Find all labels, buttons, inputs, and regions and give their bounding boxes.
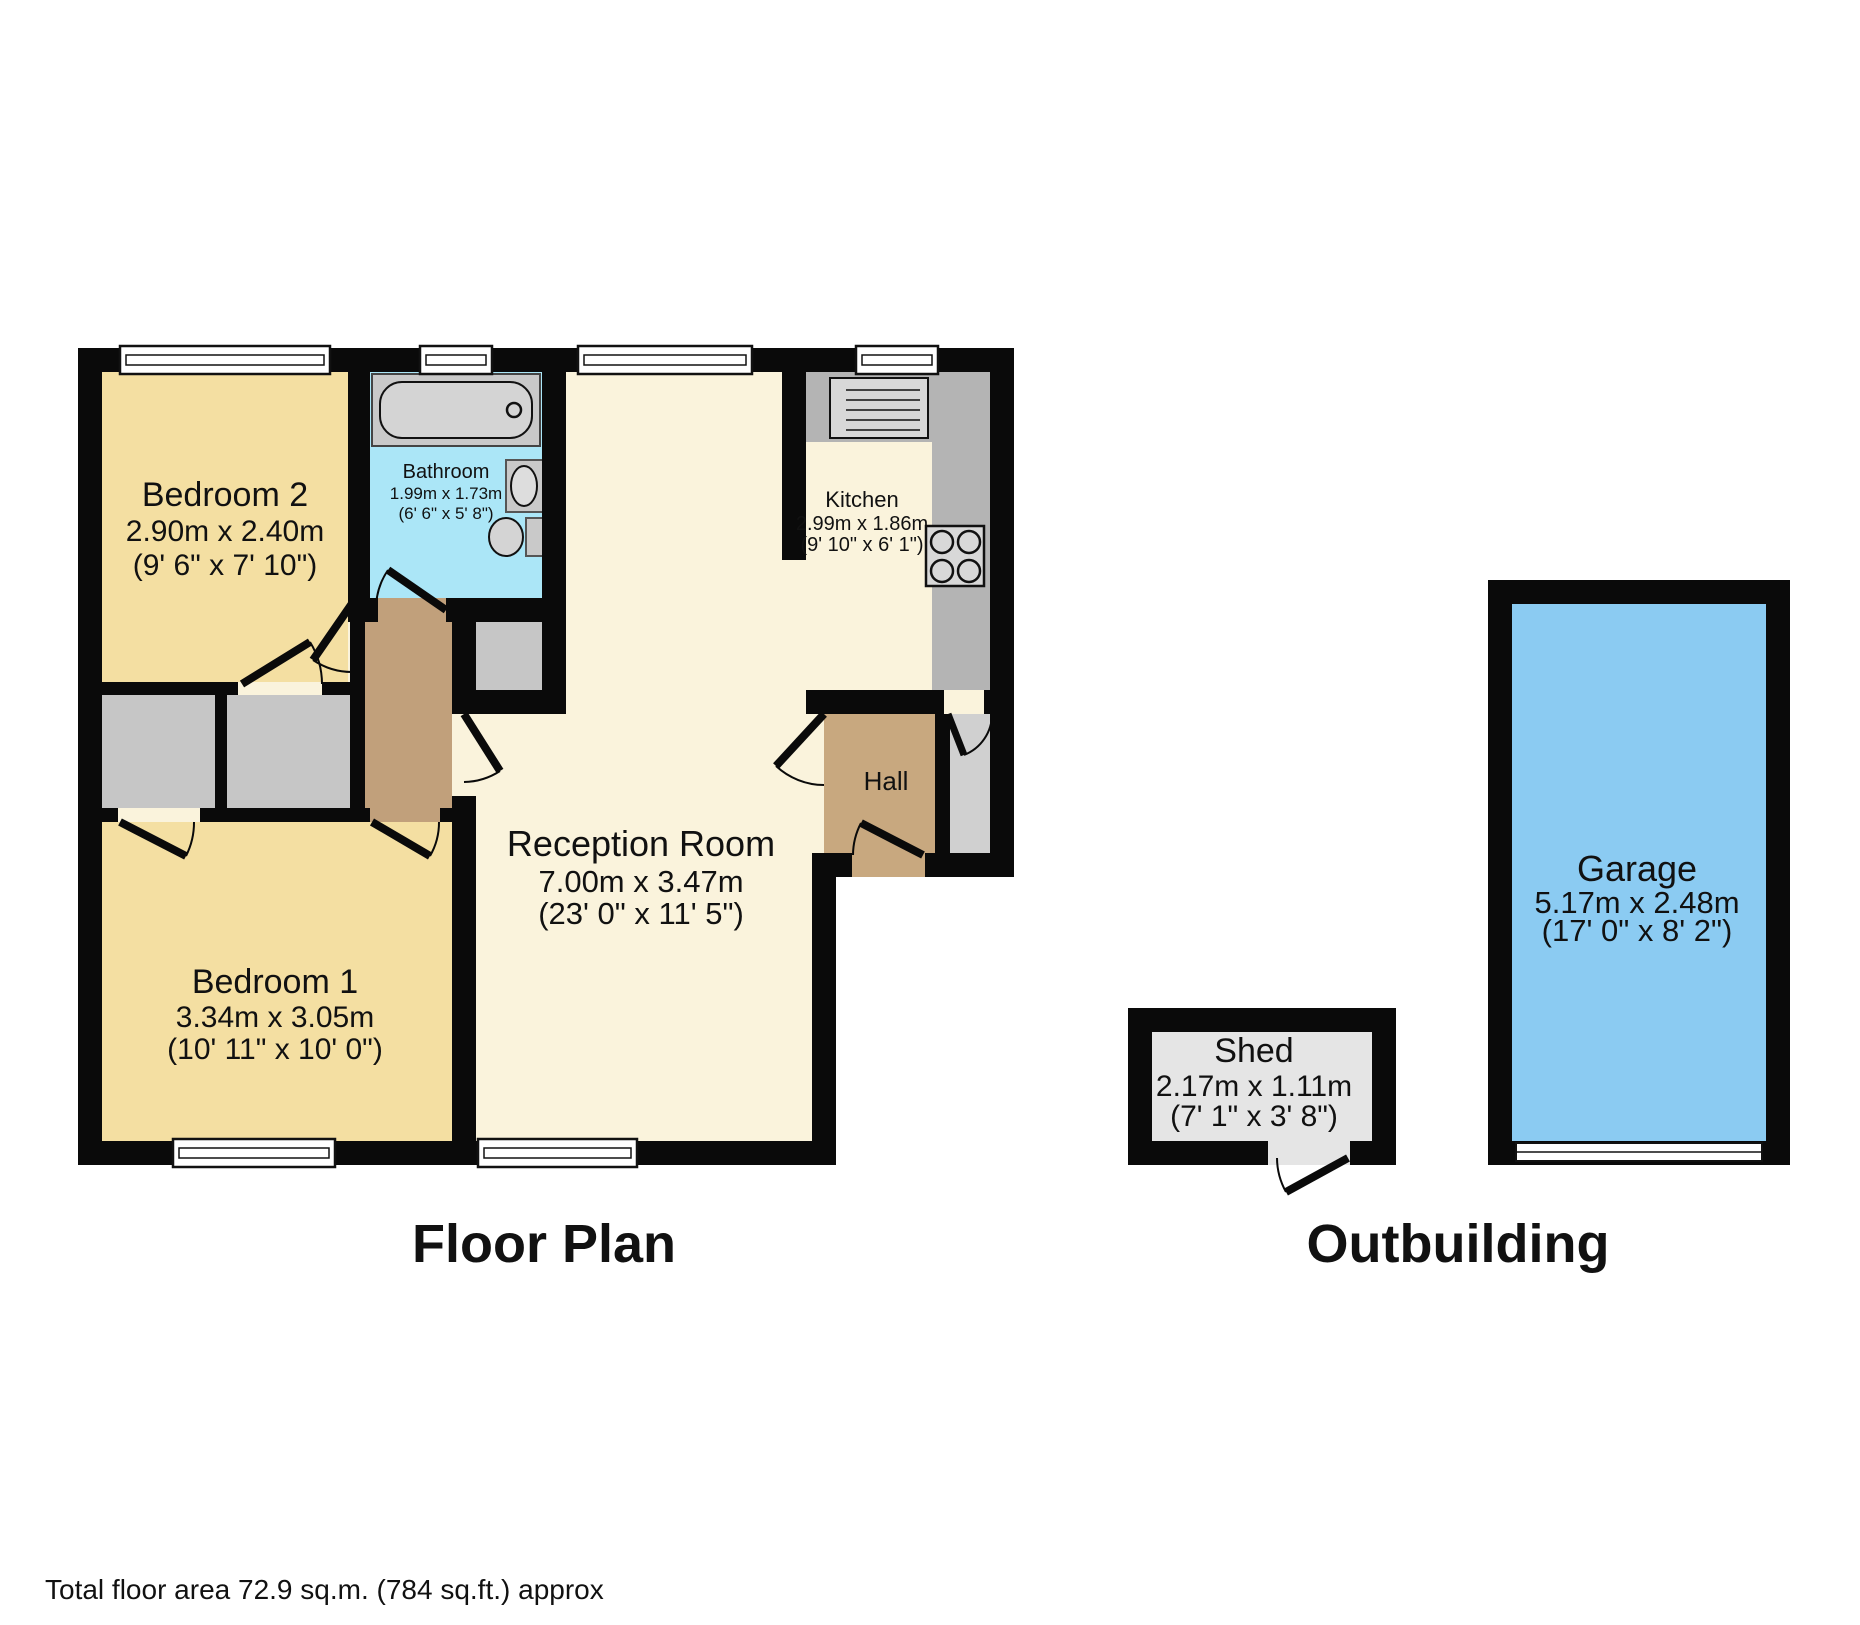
wall-closet-divider (215, 695, 227, 808)
wall-closets-top-left (90, 682, 238, 695)
kitchen-window (856, 346, 938, 374)
wall-closets-bottom-1 (102, 808, 118, 822)
bathtub-basin-icon (380, 382, 532, 438)
garage-door (1516, 1143, 1762, 1161)
bedroom1-metric: 3.34m x 3.05m (176, 1001, 374, 1034)
wall-storage-right (542, 622, 566, 690)
garage-imperial: (17' 0" x 8' 2") (1542, 913, 1733, 948)
wall-bed2-bath (348, 372, 370, 598)
bedroom2-label: Bedroom 2 (142, 476, 308, 514)
kitchen-label: Kitchen (825, 487, 898, 512)
wall-bed1-reception (452, 832, 476, 1141)
shed-label: Shed (1214, 1032, 1293, 1070)
storage-cupboard-floor (476, 622, 542, 690)
bathroom-window (420, 346, 492, 374)
total-floor-area: Total floor area 72.9 sq.m. (784 sq.ft.)… (45, 1574, 604, 1605)
garage-label: Garage (1577, 848, 1697, 889)
wall-closets-bottom-2 (200, 808, 370, 822)
bedroom2-imperial: (9' 6" x 7' 10") (133, 549, 318, 582)
wall-closets-bottom-3 (440, 808, 452, 822)
bedroom2-window (120, 346, 330, 374)
bedroom2-metric: 2.90m x 2.40m (126, 515, 324, 548)
bathroom-imperial: (6' 6" x 5' 8") (398, 504, 493, 523)
bedroom1-window (173, 1139, 335, 1167)
kitchen-imperial: (9' 10" x 6' 1") (801, 534, 924, 556)
shed-metric: 2.17m x 1.11m (1156, 1070, 1352, 1103)
bathroom-metric: 1.99m x 1.73m (390, 484, 502, 503)
closet-a-floor (102, 695, 215, 808)
reception-top-window (578, 346, 752, 374)
basin-bowl-icon (511, 466, 537, 506)
reception-imperial: (23' 0" x 11' 5") (538, 896, 744, 931)
bathroom-label: Bathroom (403, 461, 490, 483)
kitchen-metric: 2.99m x 1.86m (796, 513, 928, 535)
toilet-bowl-icon (489, 518, 523, 556)
reception-metric: 7.00m x 3.47m (538, 864, 743, 899)
wall-kitchen-bottom-2 (984, 690, 990, 714)
wall-left (78, 348, 102, 1165)
hall-entry-recess (852, 853, 925, 877)
bedroom1-label: Bedroom 1 (192, 963, 358, 1001)
bedroom1-imperial: (10' 11" x 10' 0") (167, 1033, 383, 1066)
floorplan-canvas: Bedroom 2 2.90m x 2.40m (9' 6" x 7' 10")… (0, 0, 1860, 1620)
shed-imperial: (7' 1" x 3' 8") (1170, 1100, 1338, 1133)
wall-corridor-left (350, 598, 365, 810)
toilet-tank-icon (526, 518, 544, 556)
wall-corridor-right-lower (452, 796, 476, 832)
closet-b-floor (227, 695, 350, 808)
wall-corridor-right-upper (452, 598, 476, 714)
wall-closets-top-right (322, 682, 350, 695)
wall-kitchen-bottom-1 (806, 690, 944, 714)
outbuilding-caption: Outbuilding (1307, 1214, 1610, 1274)
floor-plan-caption: Floor Plan (412, 1214, 676, 1274)
reception-bottom-window (478, 1139, 637, 1167)
corridor-floor (365, 598, 452, 822)
wall-bath-right (542, 372, 566, 598)
reception-label: Reception Room (507, 823, 775, 864)
hall-label: Hall (864, 766, 909, 796)
kitchen-sink-icon (830, 378, 928, 438)
captions: Floor Plan Outbuilding (412, 1214, 1609, 1274)
wall-hall-right (935, 714, 950, 853)
wall-right-lower (812, 853, 836, 1165)
wall-right-upper (990, 348, 1014, 877)
